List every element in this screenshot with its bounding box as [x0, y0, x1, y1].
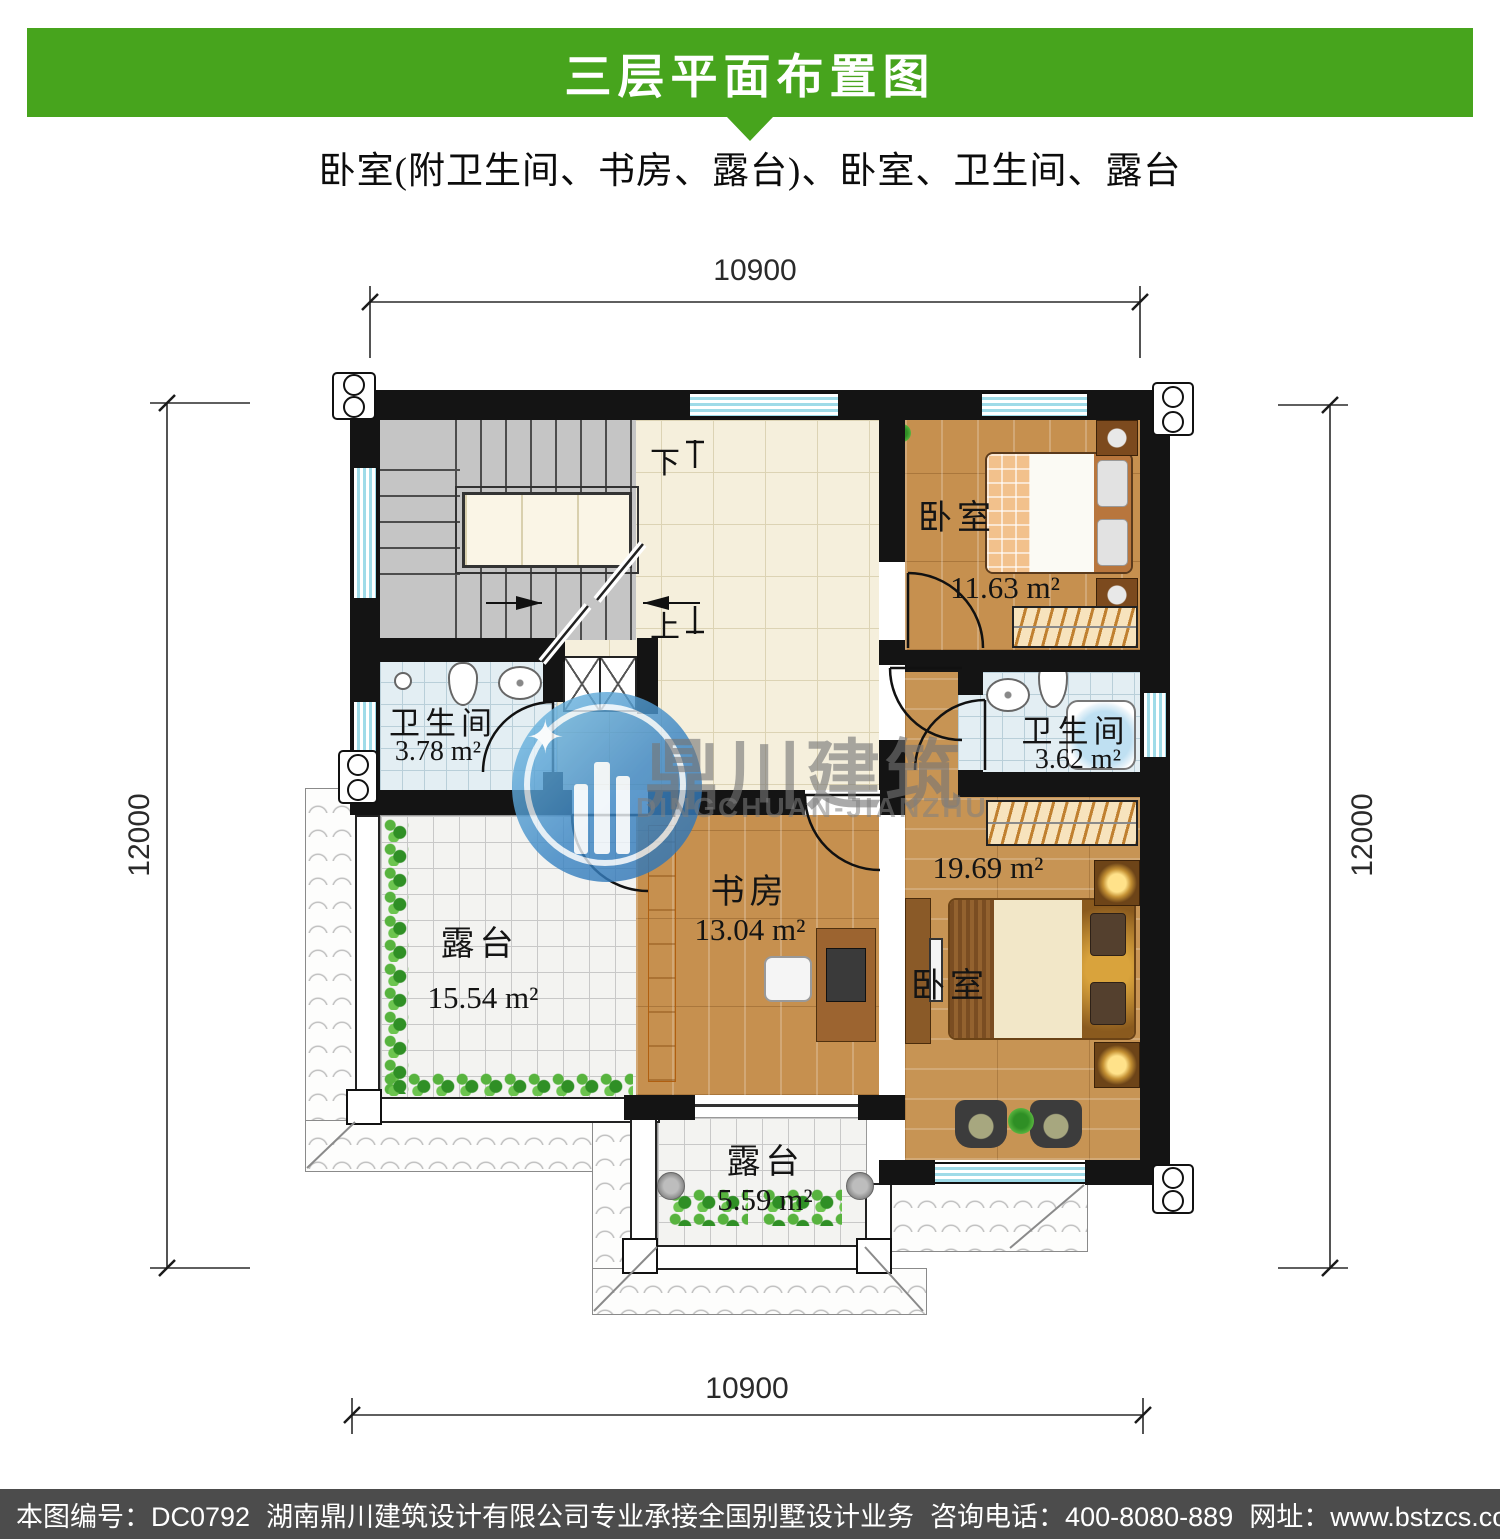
room-area: 15.54 m² [403, 980, 563, 1016]
dimension-right: 12000 [1346, 770, 1380, 900]
room-area: 13.04 m² [670, 912, 830, 948]
room-label: 卧室 [900, 490, 1014, 539]
dimension-top: 10900 [690, 254, 820, 288]
dimension-lines [150, 286, 1348, 1434]
dimension-ticks [159, 294, 1338, 1423]
stair-direction-ticks [686, 440, 704, 634]
room-area: 3.62 m² [1013, 744, 1143, 776]
room-area: 11.63 m² [930, 570, 1080, 606]
room-area: 19.69 m² [888, 850, 1088, 886]
room-area: 5.59 m² [690, 1182, 840, 1218]
room-label: 卧室 [893, 958, 1007, 1007]
room-label: 书房 [692, 864, 807, 913]
dimension-left: 12000 [123, 770, 157, 900]
floor-plan-page: 三层平面布置图 卧室(附卫生间、书房、露台)、卧室、卫生间、露台 [0, 0, 1500, 1539]
room-label: 露台 [422, 916, 537, 965]
door-arcs [483, 573, 985, 891]
plan-linework [0, 0, 1500, 1539]
stair-down-label: 下 [650, 438, 680, 482]
room-area: 3.78 m² [373, 736, 503, 768]
dimension-bottom: 10900 [682, 1372, 812, 1406]
stair-up-label: 上 [650, 602, 680, 646]
room-label: 露台 [708, 1134, 823, 1183]
